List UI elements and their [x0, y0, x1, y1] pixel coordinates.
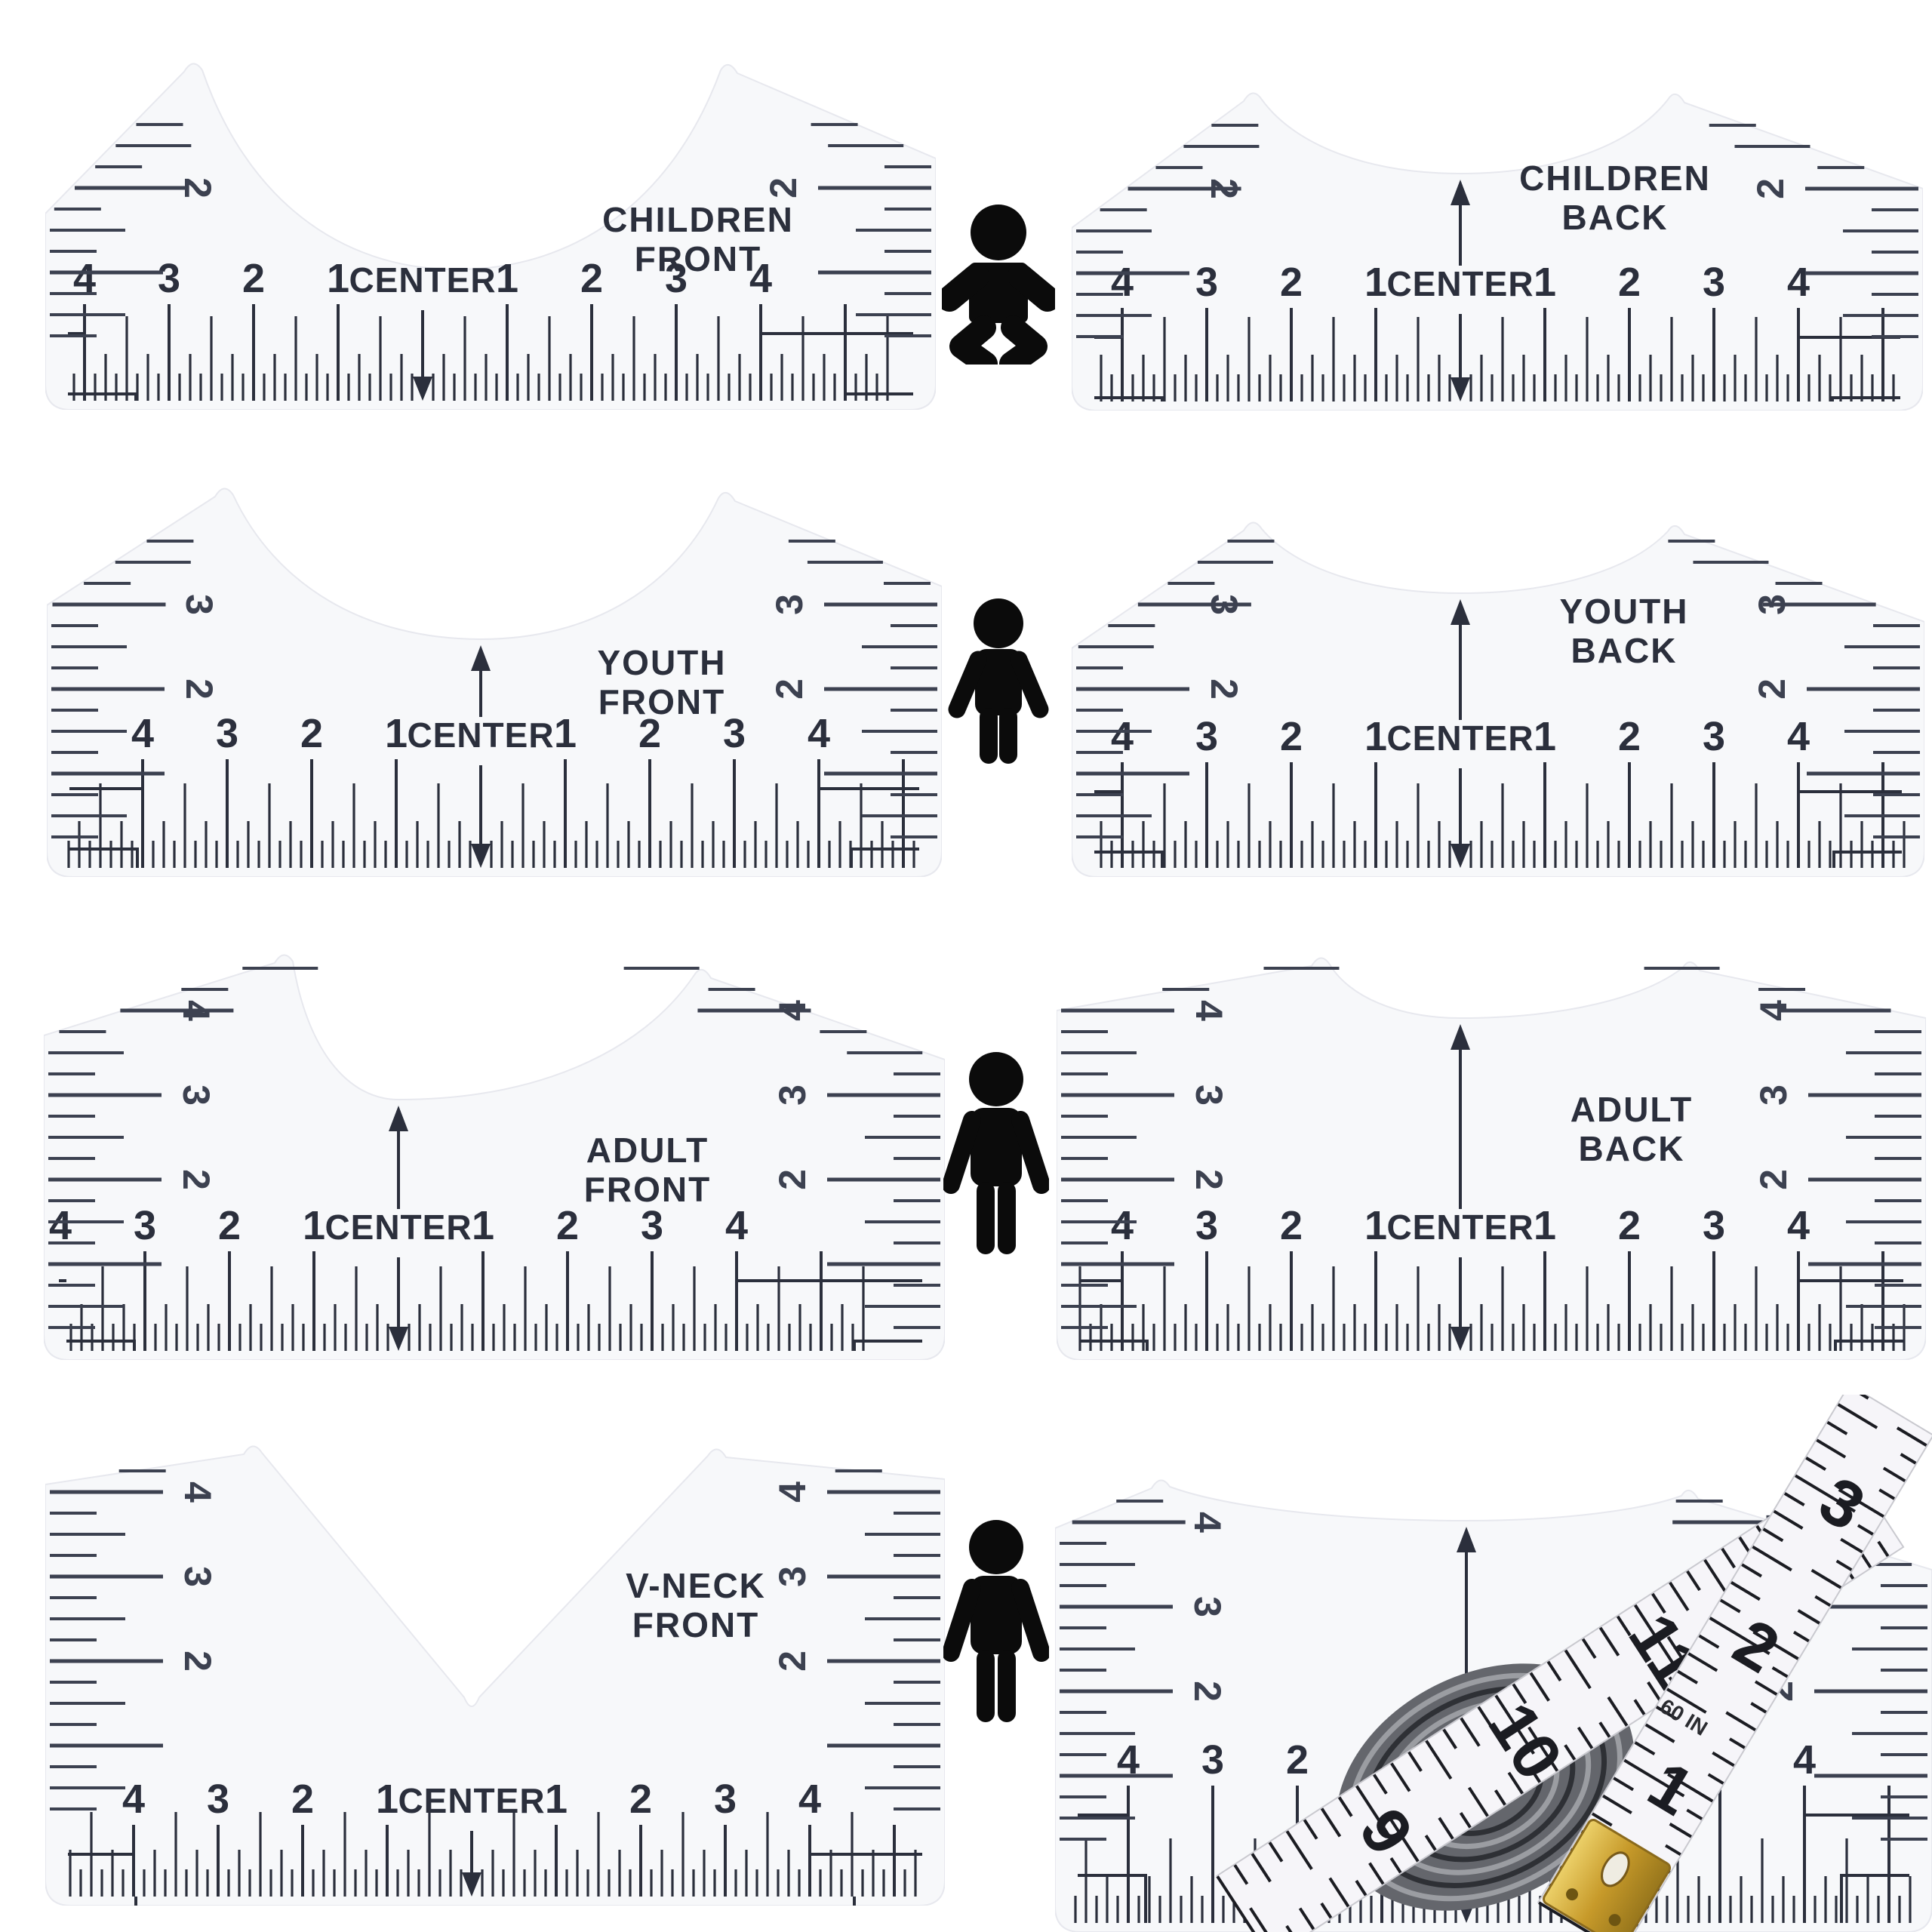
- side-number: 3: [768, 594, 811, 615]
- scale-number: 2: [629, 1777, 652, 1822]
- side-number: 4: [177, 1481, 219, 1503]
- side-number: 2: [768, 678, 811, 700]
- scale-number: 3: [216, 711, 238, 756]
- side-number: 2: [1749, 178, 1792, 199]
- scale-number: 1: [376, 1777, 398, 1822]
- scale-number: 2: [218, 1203, 241, 1248]
- scale-number: 1: [1364, 260, 1387, 305]
- side-number: 3: [177, 1566, 219, 1587]
- ruler-plate: [1072, 522, 1924, 877]
- scale-number: 2: [1618, 1203, 1641, 1248]
- scale-number: 4: [1787, 714, 1810, 759]
- scale-number: 1: [554, 711, 577, 756]
- scale-number: 2: [242, 256, 265, 301]
- side-number: 2: [771, 1169, 814, 1190]
- product-image-canvas: 44332211CENTER22CHILDRENFRONT44332211CEN…: [0, 0, 1932, 1932]
- scale-number: 3: [1195, 260, 1218, 305]
- scale-number: 4: [1111, 1203, 1134, 1248]
- scale-number: 4: [725, 1203, 748, 1248]
- scale-number: 3: [1703, 260, 1725, 305]
- scale-number: 1: [496, 256, 518, 301]
- side-number: 4: [771, 1000, 814, 1021]
- scale-number: 3: [1703, 714, 1725, 759]
- scale-number: 2: [556, 1203, 579, 1248]
- side-number: 3: [1751, 594, 1793, 615]
- side-number: 4: [1188, 1000, 1230, 1021]
- scale-number: 1: [472, 1203, 494, 1248]
- adult-icon: [943, 1051, 1049, 1256]
- center-label: CENTER: [398, 1781, 545, 1820]
- side-number: 2: [1203, 178, 1245, 199]
- scale-number: 1: [303, 1203, 325, 1248]
- scale-number: 3: [714, 1777, 737, 1822]
- center-label: CENTER: [325, 1207, 472, 1247]
- scale-number: 2: [1280, 260, 1303, 305]
- side-number: 3: [1188, 1084, 1230, 1106]
- ruler-plate: [1072, 93, 1923, 411]
- scale-number: 3: [134, 1203, 156, 1248]
- side-number: 3: [1203, 594, 1245, 615]
- baby-icon: [942, 202, 1055, 365]
- side-number: 3: [1752, 1084, 1795, 1106]
- ruler-label: FRONT: [584, 1170, 711, 1209]
- ruler-youth-back: 44332211CENTER3232YOUTHBACK: [1072, 478, 1924, 877]
- ruler-children-front: 44332211CENTER22CHILDRENFRONT: [45, 49, 936, 410]
- side-number: 2: [177, 1651, 219, 1672]
- ruler-label: CHILDREN: [1519, 158, 1711, 198]
- center-label: CENTER: [407, 715, 554, 755]
- scale-number: 1: [1364, 714, 1387, 759]
- scale-number: 3: [723, 711, 746, 756]
- side-number: 4: [1752, 1000, 1795, 1021]
- side-number: 2: [177, 177, 219, 198]
- side-number: 3: [175, 1084, 217, 1106]
- side-number: 2: [1188, 1169, 1230, 1190]
- scale-number: 4: [1787, 1203, 1810, 1248]
- scale-number: 2: [300, 711, 323, 756]
- scale-number: 2: [1618, 714, 1641, 759]
- center-label: CENTER: [349, 260, 496, 300]
- side-number: 2: [1751, 678, 1793, 700]
- scale-number: 3: [207, 1777, 229, 1822]
- scale-number: 2: [291, 1777, 314, 1822]
- scale-number: 4: [131, 711, 154, 756]
- side-number: 3: [771, 1566, 814, 1587]
- side-number: 2: [1752, 1169, 1795, 1190]
- ruler-label: ADULT: [586, 1131, 709, 1170]
- scale-number: 1: [327, 256, 349, 301]
- ruler-children-back: 44332211CENTER22CHILDRENBACK: [1072, 47, 1923, 411]
- scale-number: 3: [641, 1203, 663, 1248]
- ruler-label: FRONT: [598, 682, 725, 721]
- scale-number: 4: [1787, 260, 1810, 305]
- scale-number: 1: [385, 711, 408, 756]
- scale-number: 1: [1534, 260, 1556, 305]
- ruler-label: BACK: [1562, 198, 1669, 237]
- child-icon: [948, 596, 1049, 765]
- side-number: 2: [1203, 678, 1245, 700]
- scale-number: 1: [1534, 1203, 1556, 1248]
- side-number: 3: [178, 594, 220, 615]
- side-number: 3: [771, 1084, 814, 1106]
- center-label: CENTER: [1386, 264, 1534, 303]
- scale-number: 4: [798, 1777, 821, 1822]
- ruler-adult-back: 44332211CENTER432432ADULTBACK: [1057, 946, 1926, 1360]
- ruler-label: FRONT: [632, 1605, 759, 1644]
- scale-number: 3: [1195, 1203, 1218, 1248]
- scale-number: 1: [1364, 1203, 1387, 1248]
- scale-number: 2: [580, 256, 603, 301]
- scale-number: 1: [545, 1777, 568, 1822]
- scale-number: 3: [1703, 1203, 1725, 1248]
- side-number: 2: [175, 1169, 217, 1190]
- scale-number: 3: [158, 256, 180, 301]
- scale-number: 3: [1195, 714, 1218, 759]
- side-number: 2: [762, 177, 804, 198]
- center-label: CENTER: [1386, 718, 1534, 758]
- ruler-youth-front: 44332211CENTER3232YOUTHFRONT: [47, 477, 942, 877]
- measuring-tape: 9101112360 IN: [1131, 1395, 1932, 1932]
- side-number: 2: [771, 1651, 814, 1672]
- ruler-label: YOUTH: [1560, 592, 1689, 631]
- scale-number: 4: [1111, 260, 1134, 305]
- ruler-label: FRONT: [635, 239, 761, 278]
- ruler-label: ADULT: [1571, 1090, 1693, 1129]
- ruler-label: BACK: [1579, 1129, 1685, 1168]
- side-number: 4: [771, 1481, 814, 1503]
- ruler-label: V-NECK: [626, 1566, 766, 1605]
- ruler-label: YOUTH: [598, 643, 727, 682]
- scale-number: 4: [122, 1777, 145, 1822]
- ruler-plate: [1057, 958, 1926, 1360]
- scale-number: 1: [1534, 714, 1556, 759]
- side-number: 4: [175, 1000, 217, 1021]
- adult-icon: [943, 1518, 1049, 1724]
- scale-number: 4: [808, 711, 830, 756]
- ruler-label: CHILDREN: [602, 200, 794, 239]
- ruler-vneck-front: 44332211CENTER432432V-NECKFRONT: [45, 1438, 945, 1906]
- center-label: CENTER: [1386, 1207, 1534, 1247]
- ruler-label: BACK: [1571, 631, 1678, 670]
- scale-number: 2: [1280, 714, 1303, 759]
- side-number: 2: [178, 678, 220, 700]
- scale-number: 2: [1280, 1203, 1303, 1248]
- ruler-adult-front: 44332211CENTER432432ADULTFRONT: [44, 945, 945, 1360]
- scale-number: 2: [1618, 260, 1641, 305]
